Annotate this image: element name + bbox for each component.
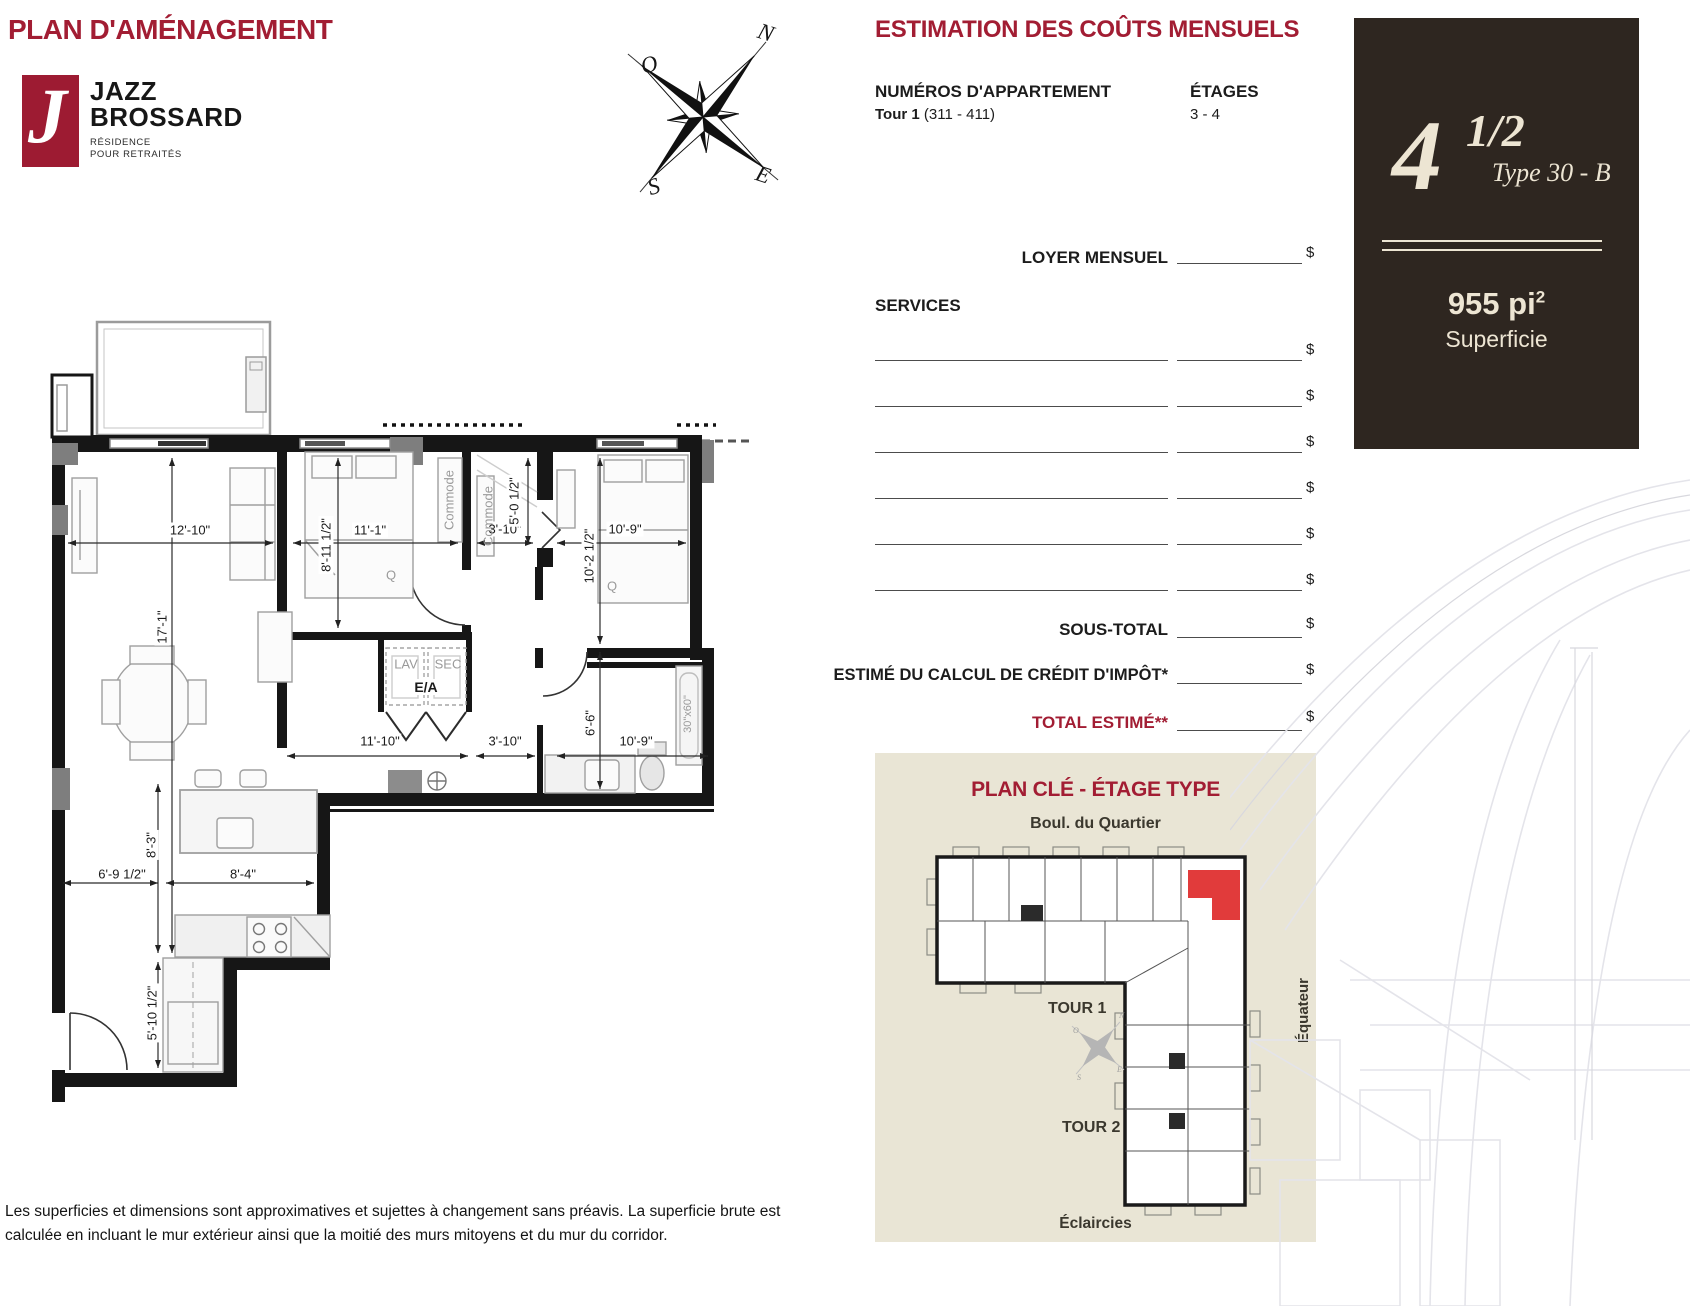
service-value-line (1177, 360, 1302, 361)
dimension-label: 6'-6" (583, 708, 598, 738)
dimension-label: 10'-2 1/2" (582, 527, 597, 586)
apartment-numbers-value: Tour 1 (311 - 411) (875, 106, 995, 123)
dimension-label: 3'-10" (486, 734, 523, 749)
service-label-line (875, 406, 1168, 407)
services-label: SERVICES (875, 296, 961, 316)
tower-label: Tour 1 (875, 106, 920, 123)
currency-sign: $ (1306, 244, 1314, 261)
mini-compass-south: S (1077, 1073, 1081, 1082)
unit-area: 955 pi2 (1354, 286, 1639, 322)
dimension-label: 8'-4" (228, 867, 258, 882)
room-label: SEC (433, 657, 464, 672)
currency-sign: $ (1306, 387, 1314, 404)
brochure-page: PLAN D'AMÉNAGEMENT J JAZZ BROSSARD RÉSID… (0, 0, 1690, 1306)
keyplan-building-outline (937, 857, 1245, 1205)
apartment-numbers-label: NUMÉROS D'APPARTEMENT (875, 82, 1111, 102)
panel-divider (1382, 240, 1602, 251)
disclaimer-line1: Les superficies et dimensions sont appro… (5, 1203, 780, 1221)
unit-area-exponent: 2 (1536, 288, 1545, 307)
furniture (72, 452, 702, 1072)
dimension-label: 5'-0 1/2" (507, 475, 522, 527)
unit-info-panel: 4 1/2 Type 30 - B 955 pi2 Superficie (1354, 18, 1639, 449)
unit-size: 4 (1392, 106, 1442, 206)
balcony (97, 322, 270, 435)
dimension-label: 5'-10 1/2" (145, 984, 160, 1043)
service-label-line (875, 544, 1168, 545)
unit-area-label: Superficie (1354, 326, 1639, 353)
service-label-line (875, 360, 1168, 361)
dimension-label: 8'-3" (144, 830, 159, 860)
dimension-label: 17'-1" (155, 608, 170, 645)
dimension-label: 10'-9" (617, 734, 654, 749)
bed-label: Q (605, 579, 619, 594)
unit-area-value: 955 pi (1448, 286, 1536, 321)
service-value-line (1177, 406, 1302, 407)
service-label-line (875, 452, 1168, 453)
service-label-line (875, 498, 1168, 499)
dimension-label: 10'-9" (606, 522, 643, 537)
bed-label: Q (384, 568, 398, 583)
total-estime-label: TOTAL ESTIMÉ** (868, 713, 1168, 733)
furniture-label: Commode (481, 484, 496, 548)
credit-impot-label: ESTIMÉ DU CALCUL DE CRÉDIT D'IMPÔT* (818, 666, 1168, 685)
service-label-line (875, 590, 1168, 591)
room-label: E/A (412, 679, 439, 695)
sous-total-label: SOUS-TOTAL (868, 620, 1168, 640)
unit-size-fraction: 1/2 (1466, 104, 1525, 157)
furniture-label: Commode (442, 468, 457, 532)
fixture-label: 30"x60" (682, 693, 694, 735)
disclaimer-line2: calculée en incluant le mur extérieur ai… (5, 1227, 668, 1245)
currency-sign: $ (1306, 341, 1314, 358)
unit-type: Type 30 - B (1492, 158, 1611, 188)
floors-label: ÉTAGES (1190, 82, 1259, 102)
dimension-label: 6'-9 1/2" (96, 867, 148, 882)
apartment-range: (311 - 411) (924, 106, 995, 123)
mini-compass-north: N (1119, 1011, 1124, 1020)
floor-plan-drawing (0, 0, 770, 1130)
tower1-label: TOUR 1 (1048, 1000, 1106, 1018)
tower2-label: TOUR 2 (1062, 1119, 1120, 1137)
dimension-label: 8'-11 1/2" (319, 516, 334, 574)
dimension-label: 12'-10" (168, 523, 212, 538)
mini-compass-east: E (1117, 1065, 1122, 1074)
estimation-title: ESTIMATION DES COÛTS MENSUELS (875, 16, 1299, 44)
room-label: LAV (392, 657, 420, 672)
architectural-wireframe-background (1230, 440, 1690, 1306)
dimension-label: 11'-1" (352, 523, 388, 538)
dimension-label: 11'-10" (358, 734, 401, 749)
loyer-label: LOYER MENSUEL (868, 248, 1168, 268)
floors-value: 3 - 4 (1190, 106, 1220, 123)
loyer-blank-line (1177, 263, 1302, 264)
mini-compass-west: O (1073, 1026, 1079, 1035)
